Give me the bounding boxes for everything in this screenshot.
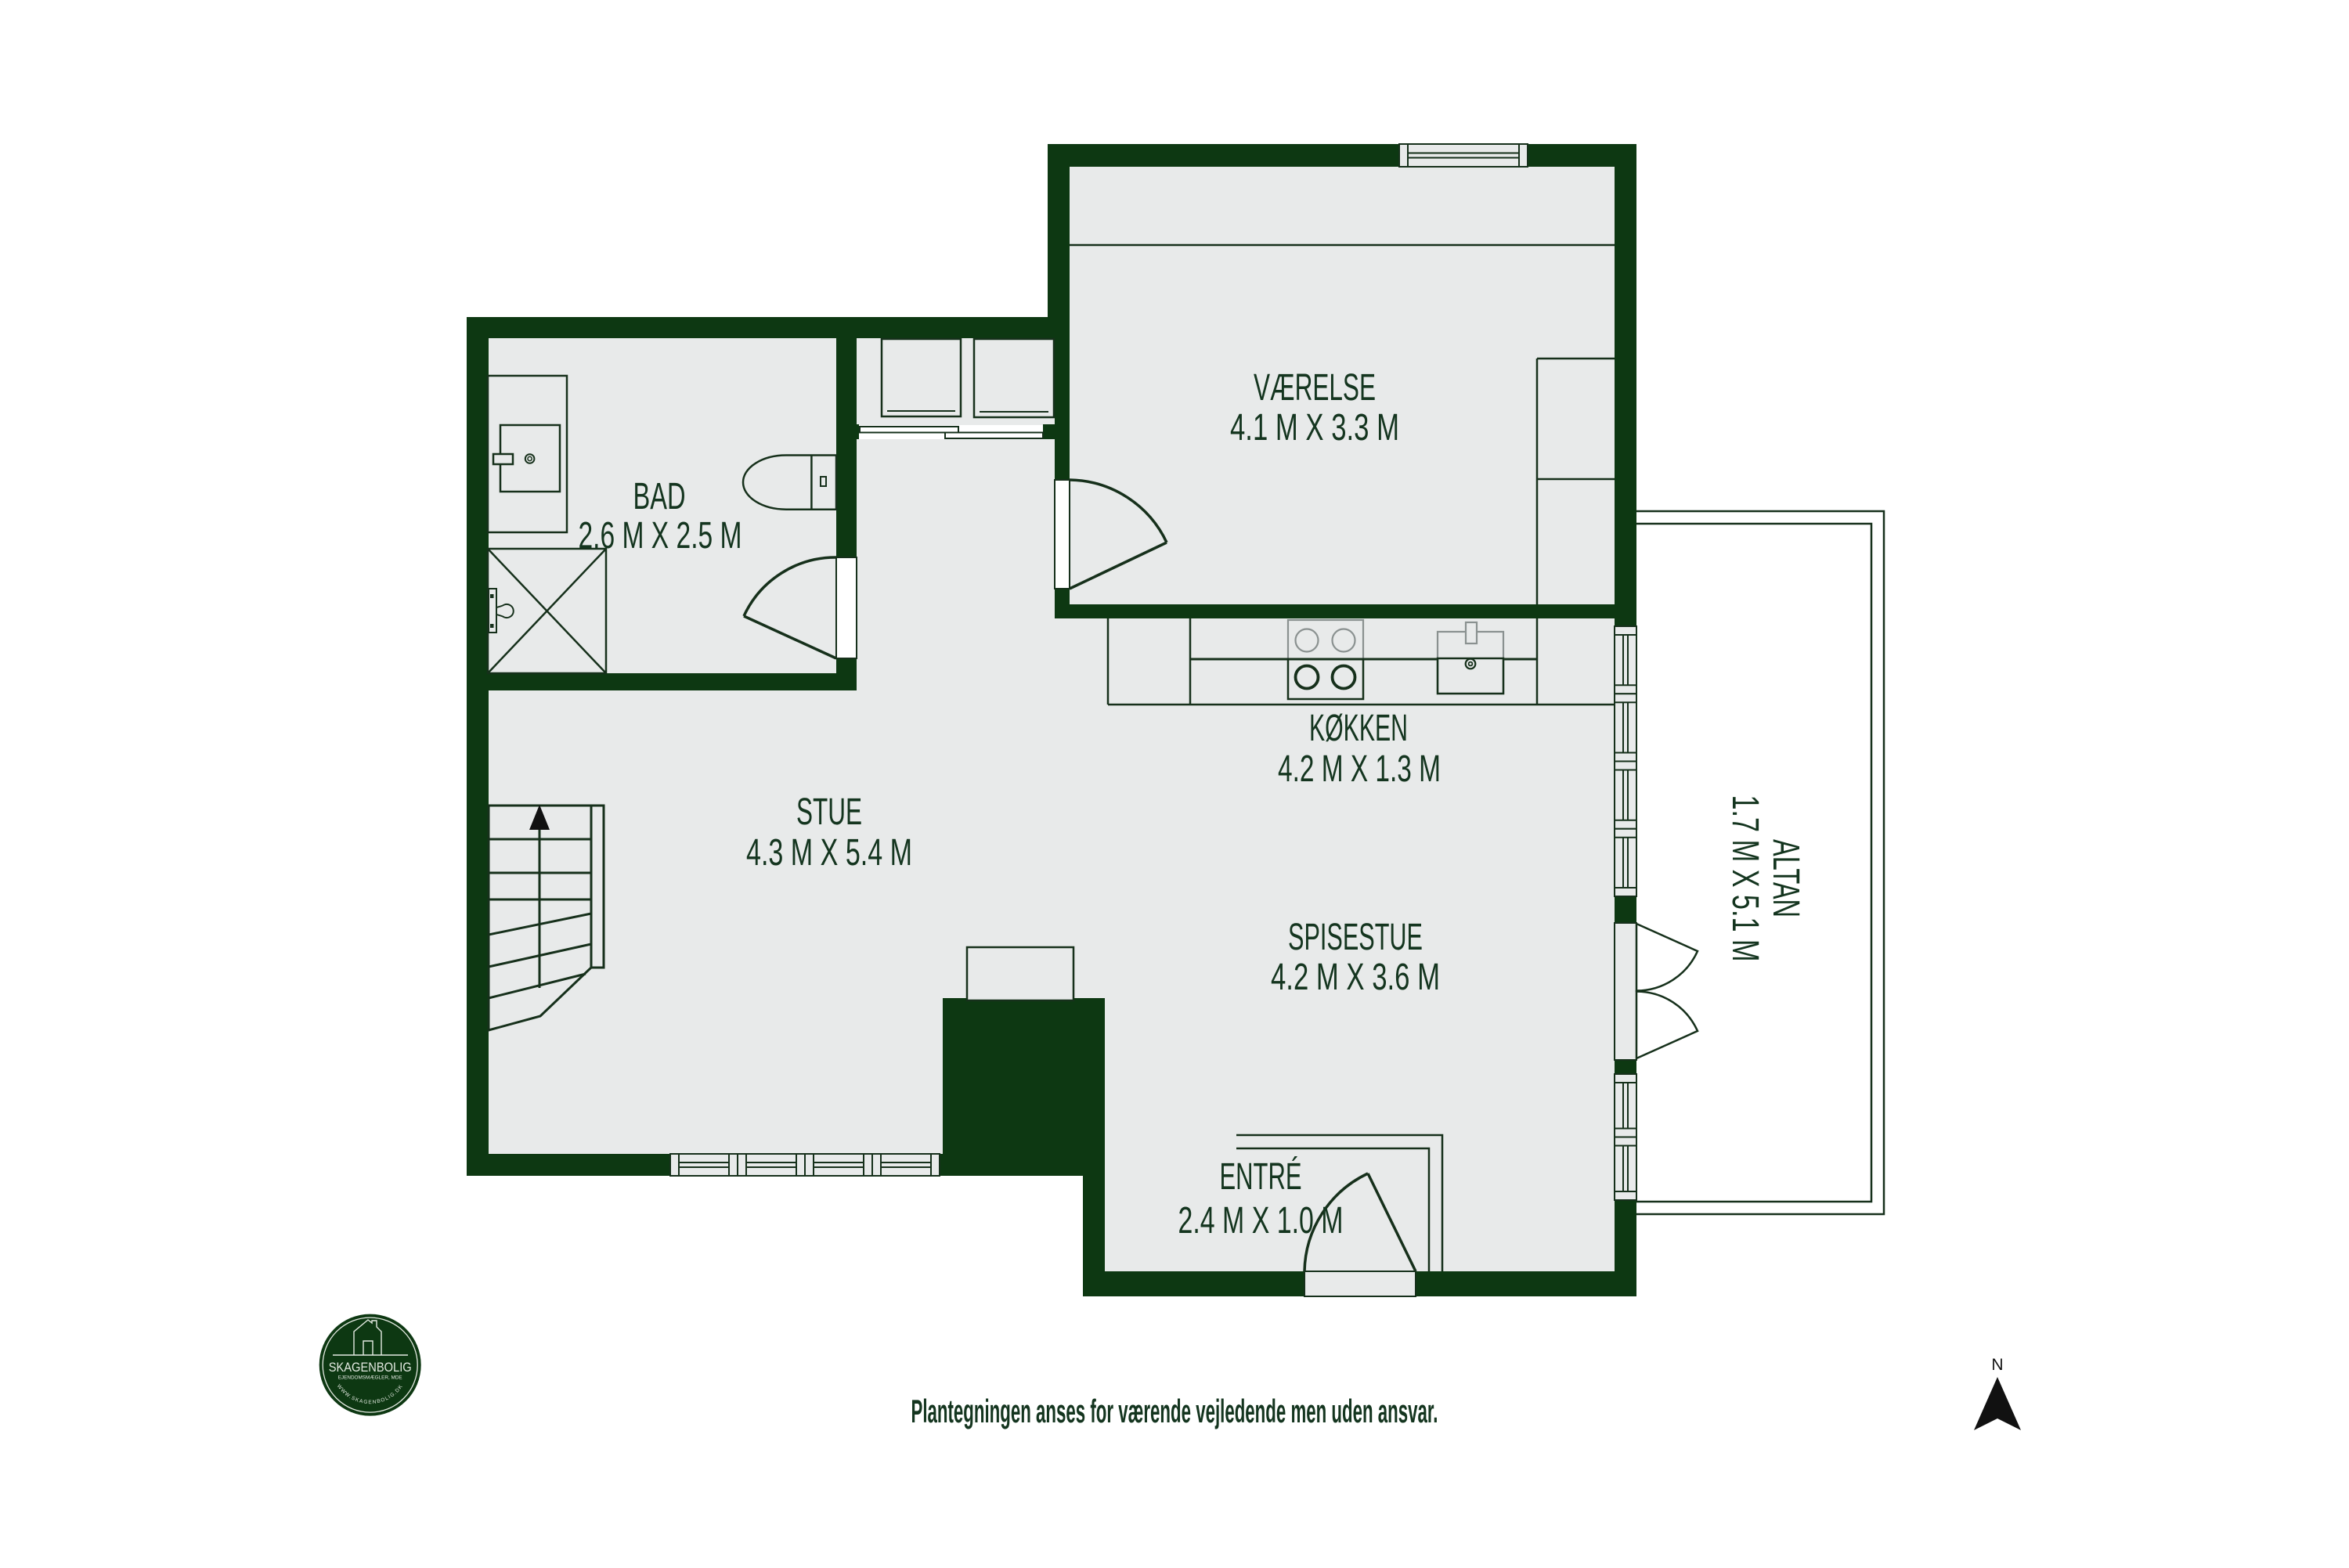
svg-text:Plantegningen anses for værend: Plantegningen anses for værende vejleden… [911,1393,1438,1429]
svg-text:SKAGENBOLIG: SKAGENBOLIG [329,1360,412,1375]
svg-text:4.2 M X 1.3 M: 4.2 M X 1.3 M [1278,748,1441,790]
svg-text:STUE: STUE [796,791,862,833]
svg-text:N: N [1991,1356,2003,1374]
svg-text:KØKKEN: KØKKEN [1309,708,1408,749]
svg-text:4.3 M X 5.4 M: 4.3 M X 5.4 M [746,832,912,874]
svg-text:BAD: BAD [633,476,686,517]
svg-text:SPISESTUE: SPISESTUE [1288,917,1423,958]
svg-text:4.2 M X 3.6 M: 4.2 M X 3.6 M [1271,957,1440,998]
svg-text:1.7 M X 5.1 M: 1.7 M X 5.1 M [1724,795,1766,962]
svg-text:2.6 M X 2.5 M: 2.6 M X 2.5 M [579,515,742,557]
svg-text:VÆRELSE: VÆRELSE [1254,367,1376,409]
svg-text:EJENDOMSMÆGLER, MDE: EJENDOMSMÆGLER, MDE [338,1375,403,1381]
svg-text:ENTRÉ: ENTRÉ [1220,1156,1302,1198]
svg-text:2.4 M X 1.0 M: 2.4 M X 1.0 M [1178,1200,1344,1242]
svg-text:ALTAN: ALTAN [1765,839,1806,917]
svg-text:4.1 M X 3.3 M: 4.1 M X 3.3 M [1230,407,1399,449]
